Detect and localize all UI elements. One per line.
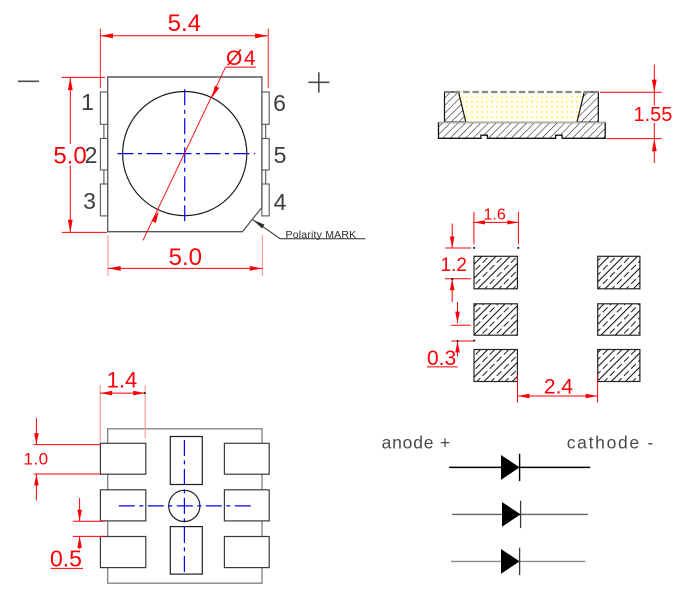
svg-text:cathode -: cathode -	[567, 433, 655, 453]
svg-text:1.2: 1.2	[441, 255, 467, 276]
svg-text:6: 6	[273, 90, 286, 116]
svg-text:0.5: 0.5	[50, 546, 82, 572]
svg-text:0.3: 0.3	[427, 347, 456, 370]
svg-text:Ø4: Ø4	[226, 47, 257, 70]
svg-text:Polarity MARK: Polarity MARK	[286, 229, 357, 241]
svg-text:5.0: 5.0	[53, 143, 86, 170]
svg-text:2.4: 2.4	[544, 376, 574, 399]
svg-text:1: 1	[81, 89, 94, 115]
svg-text:4: 4	[274, 189, 287, 215]
svg-text:1.0: 1.0	[24, 450, 49, 469]
svg-text:5.4: 5.4	[168, 10, 201, 37]
svg-text:anode +: anode +	[382, 433, 451, 453]
svg-text:3: 3	[83, 188, 96, 214]
svg-text:1.6: 1.6	[483, 206, 505, 223]
svg-text:5.0: 5.0	[169, 244, 202, 271]
svg-text:1.4: 1.4	[107, 368, 138, 393]
svg-text:5: 5	[274, 142, 287, 168]
svg-text:1.55: 1.55	[634, 104, 673, 126]
